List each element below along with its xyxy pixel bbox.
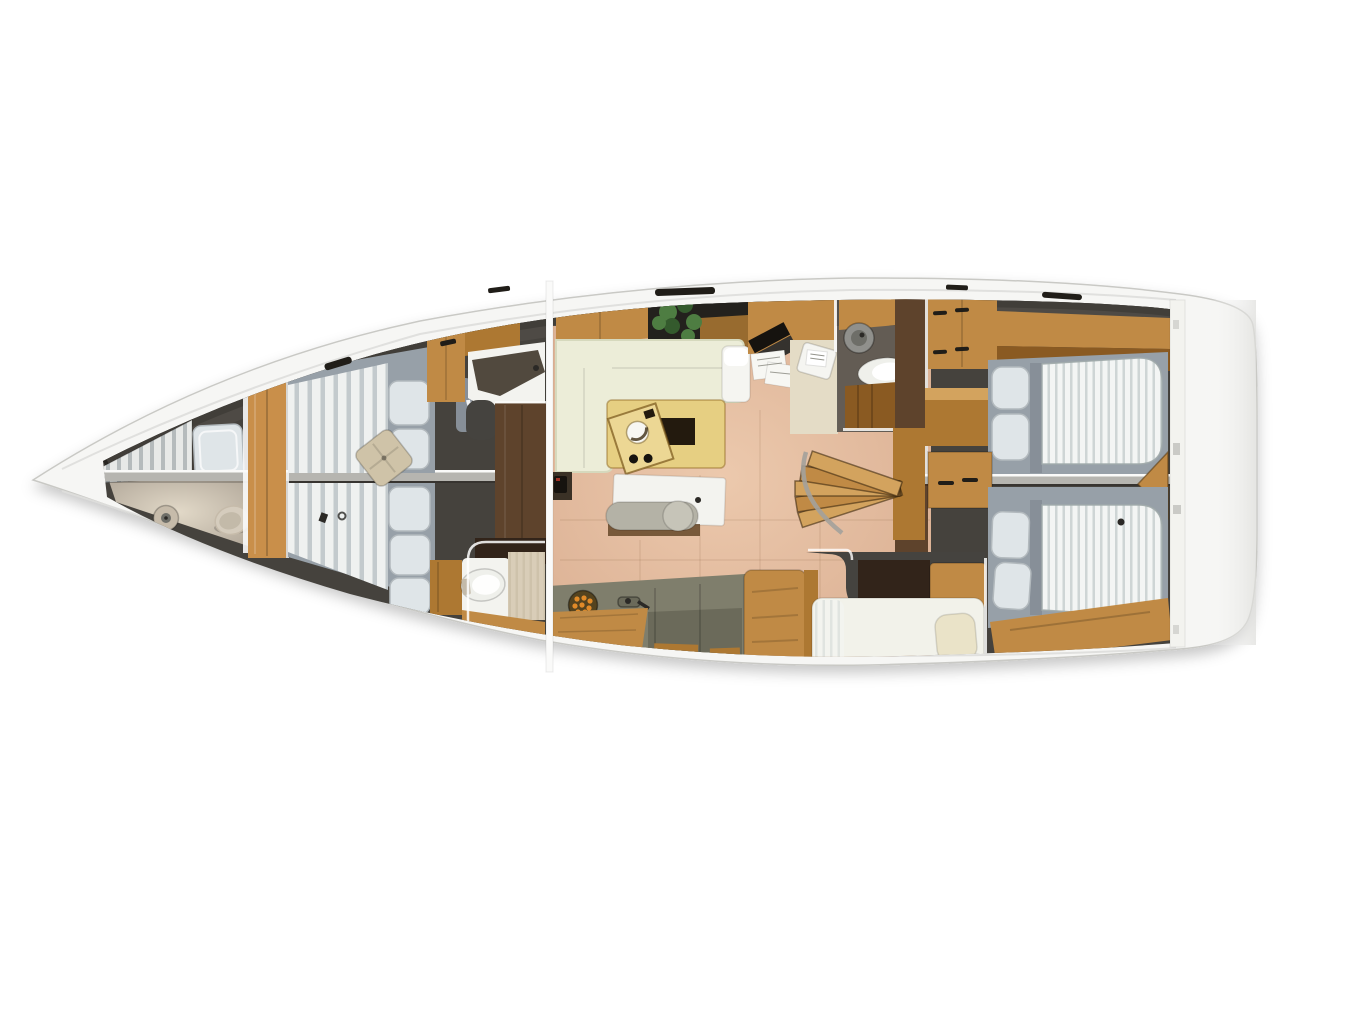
between-cabin-dresser — [928, 452, 992, 508]
aft-low-pillow-1 — [991, 511, 1030, 558]
aft-up-duvet — [1042, 358, 1162, 464]
forepeak-sink-dot — [164, 516, 168, 520]
salon-table — [607, 400, 725, 474]
galley-faucet — [625, 598, 631, 604]
aft-cabin-door-frame-upper — [925, 294, 928, 474]
chaise-pillow — [724, 348, 748, 366]
aft-double-cabin-lower — [988, 487, 1172, 662]
aft-up-pillow-2 — [992, 414, 1029, 460]
aft-cabin-door-frame-lower — [984, 558, 987, 668]
deck-hatch-5 — [946, 285, 968, 291]
aft-low-pillow-2 — [992, 562, 1031, 610]
fwd-pillow-4 — [390, 535, 430, 575]
salon-bench — [606, 501, 700, 536]
fwd-pillow-1 — [389, 381, 429, 425]
yacht-floorplan-screenshot — [0, 0, 1366, 1024]
fwd-head-shower — [466, 400, 497, 440]
aft-low-fitting-dot — [1118, 519, 1125, 526]
bench-round-pad — [663, 501, 693, 531]
stern-inner-band — [1170, 300, 1185, 647]
yacht-floorplan-image — [0, 0, 1366, 1024]
fwd-head2-wood-locker — [430, 560, 462, 615]
forward-bulkhead-door — [243, 380, 289, 558]
fwd-head2-beige-panel — [508, 552, 545, 620]
fwd-head-faucet — [533, 365, 539, 371]
nook-dark-locker — [858, 560, 930, 602]
fwd-pillow-3 — [389, 487, 430, 531]
forward-corridor — [495, 401, 548, 543]
mast-locker — [551, 472, 572, 500]
mast-section-line — [546, 281, 553, 672]
nook-berth-stripes — [814, 600, 844, 666]
transom-shading — [1200, 300, 1256, 645]
aft-low-duvet — [1042, 505, 1162, 616]
aft-up-pillow-1 — [992, 367, 1029, 409]
